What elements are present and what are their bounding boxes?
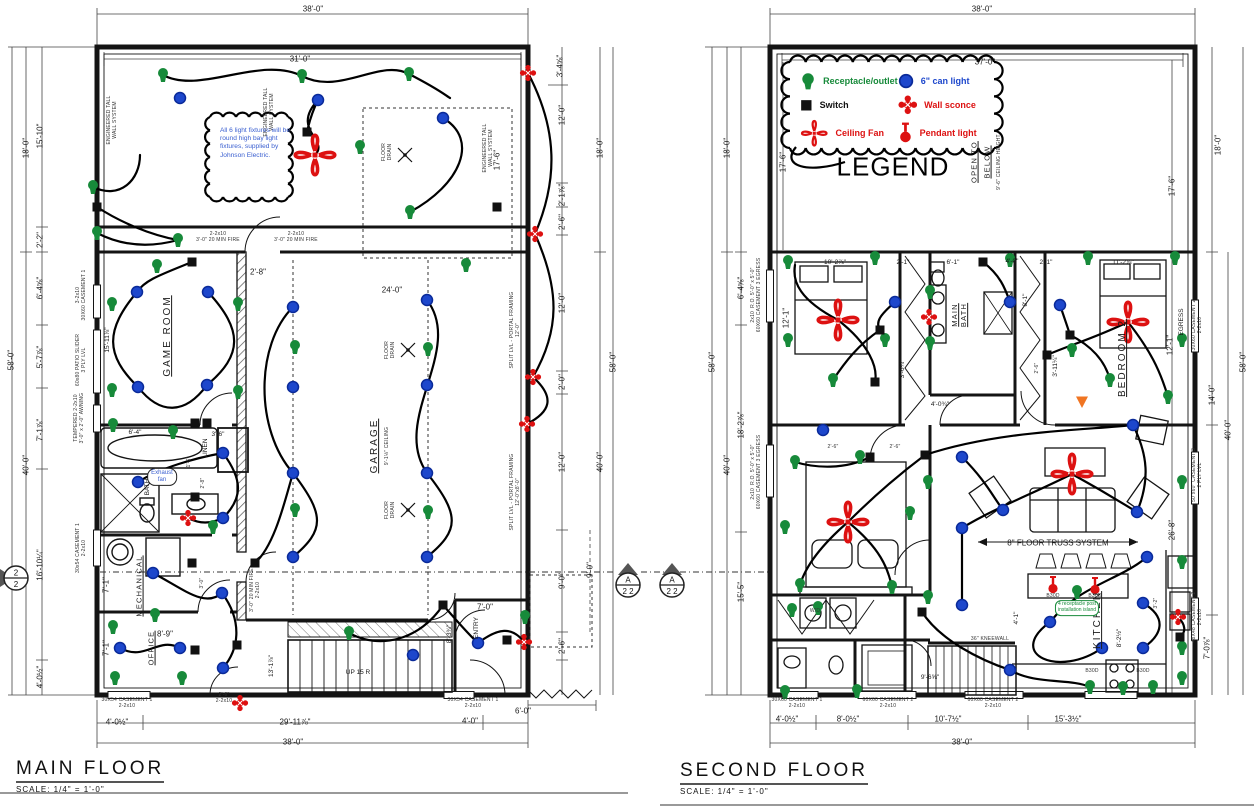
dim-label: 3'-11¼" (1052, 355, 1060, 377)
can-light-icon (286, 550, 300, 564)
wall-sconce-icon (1170, 609, 1187, 626)
dim-label: 40'-0" (1223, 420, 1232, 440)
dimension-rails (8, 8, 1243, 748)
receptacle-icon (1168, 249, 1182, 267)
dim-label: 15'-5" (736, 582, 745, 602)
dim-label: 38'-0" (303, 4, 323, 13)
wall-sconce-icon (525, 369, 542, 386)
dim-label: 7'-1" (101, 577, 110, 593)
dim-label: 50"x60" CASEMENT 3 2 PLY LVL (1192, 448, 1204, 502)
receptacle-icon (288, 338, 302, 356)
can-light-icon (216, 511, 230, 525)
dim-label: 60X60 CASEMENT 2 2-2x10 (863, 698, 914, 710)
ceiling-fan-icon (1049, 451, 1095, 497)
dim-label: 6'-0" (515, 706, 531, 715)
dim-label: 15'-3½" (1054, 714, 1081, 723)
receptacle-icon (1175, 473, 1189, 491)
wall-sconce-icon (921, 309, 938, 326)
receptacle-icon (781, 253, 795, 271)
second-floor-title-block: SECOND FLOOR SCALE: 1/4" = 1'-0" (680, 760, 868, 796)
legend-item-label: 6" can light (921, 76, 970, 86)
switch-icon (875, 325, 886, 336)
can-light-icon (131, 475, 145, 489)
dim-label: 10'-2⅞" (824, 259, 846, 267)
can-light-icon (201, 285, 215, 299)
floor-drain-icon (399, 341, 417, 359)
dim-label: 58'-0" (1238, 352, 1247, 372)
can-light-icon (113, 641, 127, 655)
can-light-icon (1136, 596, 1150, 610)
receptacle-icon (86, 178, 100, 196)
dim-label: 12'-1" (1165, 335, 1174, 355)
can-light-icon (1003, 295, 1017, 309)
dim-label: SPLIT LVL - PORTAL FRAMING 12'-0"x8'-0" (510, 454, 522, 531)
switch-icon (1065, 330, 1076, 341)
can-light-icon (286, 380, 300, 394)
switch-icon (1042, 350, 1053, 361)
svg-text:A: A (669, 576, 675, 585)
dim-label: 6'-1" (947, 259, 960, 267)
receptacle-icon (1175, 553, 1189, 571)
dim-label: 26'-8" (1167, 520, 1176, 540)
dim-label: 10'-7½" (934, 714, 961, 723)
can-light-icon (216, 446, 230, 460)
receptacle-icon (1070, 583, 1084, 601)
dim-label: 40'-0" (21, 455, 30, 475)
switch-icon (92, 202, 103, 213)
dim-label: 2'-8" (250, 267, 266, 276)
receptacle-icon (800, 71, 816, 92)
receptacle-icon (518, 608, 532, 626)
dim-label: 48X48 CASEMENT 2 2-2x10 (1192, 592, 1204, 643)
can-light-icon (888, 295, 902, 309)
dim-label: 3'-4⅝" (555, 55, 564, 78)
dim-label: FLOOR DRAIN (385, 341, 397, 359)
dim-label: 2'-1" (1040, 259, 1053, 267)
legend-item: Receptacle/outlet (800, 71, 898, 92)
receptacle-icon (788, 453, 802, 471)
dim-label: 9'-0" (557, 573, 566, 589)
dim-label: 5'-7⅞" (35, 346, 44, 369)
dim-label: 2'-6" (828, 445, 839, 451)
can-light-icon (173, 91, 187, 105)
wall-sconce-icon (180, 510, 197, 527)
svg-text:2: 2 (14, 569, 19, 578)
dim-label: 17'-6" (1167, 176, 1176, 196)
receptacle-icon (288, 501, 302, 519)
floorplan-drawing: 22A2 2A2 2 (0, 0, 1254, 811)
switch-icon (865, 452, 876, 463)
dim-label: 2'-1" (897, 259, 910, 267)
receptacle-icon (826, 371, 840, 389)
dim-label: 38'-0" (972, 4, 992, 13)
dim-label: 60x80 PATIO SLIDER 3 PLY LVL (76, 334, 88, 386)
receptacle-icon (402, 65, 416, 83)
receptacle-icon (175, 669, 189, 687)
can-light-icon (1130, 505, 1144, 519)
dim-label: 16'-10¼" (35, 549, 44, 581)
can-light-icon (216, 661, 230, 675)
receptacle-icon (885, 578, 899, 596)
svg-text:2: 2 (14, 580, 19, 589)
dim-label: W/D (810, 609, 820, 615)
can-light-icon (200, 378, 214, 392)
room-label: MECHANICAL (136, 555, 145, 616)
can-light-icon (955, 521, 969, 535)
switch-icon (187, 257, 198, 268)
dim-label: 8'-2½" (1116, 629, 1124, 647)
receptacle-icon (403, 203, 417, 221)
can-light-icon (146, 566, 160, 580)
can-light-icon (816, 423, 830, 437)
dim-label: 30x54 CASEMENT 1 2-2x10 (76, 523, 88, 573)
can-light-icon (996, 503, 1010, 517)
receptacle-icon (421, 503, 435, 521)
dim-label: 36" KNEEWALL (971, 637, 1009, 643)
main-floor-title: MAIN FLOOR (16, 758, 164, 783)
receptacle-icon (1081, 249, 1095, 267)
dim-label: 2-2x10 3'-0" 20 MIN FIRE (274, 232, 318, 244)
can-light-icon (420, 550, 434, 564)
switch-icon (978, 257, 989, 268)
dim-label: 18'-0" (595, 138, 604, 158)
note-label: Exhaust fan (147, 468, 177, 486)
dim-label: 12'-1" (781, 308, 790, 328)
dim-label: 2'-6" 2-2x10 (216, 693, 233, 705)
dim-label: 2-2x10 3'-0" 20 MIN FIRE (196, 232, 240, 244)
can-light-icon (215, 586, 229, 600)
switch-icon (232, 640, 243, 651)
section-marker: A2 2 (616, 563, 640, 597)
dim-label: 18'-2⅞" (736, 411, 745, 438)
dim-label: 4'-0¾" (931, 401, 949, 409)
wall-sconce-icon (527, 226, 544, 243)
svg-text:2 2: 2 2 (666, 587, 678, 596)
can-light-icon (898, 73, 914, 89)
receptacle-icon (166, 423, 180, 441)
receptacle-icon (923, 283, 937, 301)
dim-label: 30X54 CASEMENT 1 2-2x10 (102, 698, 153, 710)
can-light-icon (286, 466, 300, 480)
legend-item-label: Receptacle/outlet (823, 76, 898, 86)
dim-label: B30D (1085, 669, 1098, 675)
receptacle-icon (923, 334, 937, 352)
floorplan-sheet: 22A2 2A2 2 38'-0"31'-0"3'-4⅝"17'-6"18'-0… (0, 0, 1254, 811)
dim-label: UP 15 R (346, 669, 370, 677)
legend-item-label: Pendant light (920, 128, 977, 138)
can-light-icon (131, 380, 145, 394)
dim-label: 3'-0" (200, 578, 206, 589)
room-label: OFFICE (148, 631, 157, 666)
svg-text:A: A (625, 576, 631, 585)
dim-label: 6'-4⅝" (35, 277, 44, 300)
dim-label: B30D (1088, 594, 1101, 600)
dim-label: 4'-0½" (776, 714, 799, 723)
dim-label: 60X60 CASEMENT 2 2-2x10 (968, 698, 1019, 710)
dim-label: 7'-1" (101, 640, 110, 656)
receptacle-icon (1065, 341, 1079, 359)
dim-label: 8'-0½" (837, 714, 860, 723)
legend-item: 6" can light (898, 71, 998, 92)
dim-label: 9'-0" (585, 562, 594, 578)
legend-item-label: Wall sconce (924, 100, 976, 110)
switch-icon (917, 607, 928, 618)
dim-label: 2x10 R.O. 5'-0" x 5'-0" 60X60 CASEMENT 3… (751, 258, 763, 333)
dim-label: 8'-3¾" (446, 625, 454, 643)
receptacle-icon (106, 416, 120, 434)
receptacle-icon (353, 138, 367, 156)
dim-label: ENGINEERED TALL WALL SYSTEM (107, 96, 119, 145)
receptacle-icon (231, 295, 245, 313)
receptacle-icon (1146, 678, 1160, 696)
dim-label: 17'-6" (778, 152, 787, 172)
dim-label: 8" FLOOR TRUSS SYSTEM (1007, 538, 1108, 547)
floor-drain-icon (396, 146, 414, 164)
dim-label: 6'-4⅝" (736, 277, 745, 300)
wall-sconce-icon (232, 695, 249, 712)
dim-label: 58'-0" (6, 350, 15, 370)
pendant-light-icon (1047, 576, 1060, 595)
dim-label: 4'-0½" (106, 717, 129, 726)
dim-label: 6'-4" (129, 429, 142, 437)
room-label: GAME ROOM (162, 295, 174, 376)
dim-label: 12'-0" (557, 293, 566, 313)
receptacle-icon (295, 67, 309, 85)
legend-item-label: Ceiling Fan (836, 128, 885, 138)
dim-label: B30D (1046, 594, 1059, 600)
can-light-icon (311, 93, 325, 107)
legend-item: Switch (800, 95, 898, 115)
can-light-icon (1003, 663, 1017, 677)
receptacle-icon (793, 576, 807, 594)
receptacle-icon (105, 295, 119, 313)
can-light-icon (1140, 550, 1154, 564)
receptacle-icon (108, 669, 122, 687)
receptacle-icon (90, 224, 104, 242)
dim-label: 11'-2⅞" (1112, 259, 1134, 267)
dim-label: 2'-0" (557, 374, 566, 390)
dim-label: SPLIT LVL - PORTAL FRAMING 12'-0" (510, 292, 522, 369)
dim-label: 29'-11⅞" (280, 717, 311, 726)
receptacle-icon (150, 257, 164, 275)
dim-label: 12'-0" (557, 452, 566, 472)
dim-label: 2'-6" (557, 638, 566, 654)
dim-label: 12'-0" (557, 105, 566, 125)
receptacle-icon (421, 340, 435, 358)
switch-icon (800, 99, 813, 112)
can-light-icon (420, 293, 434, 307)
second-floor-scale: SCALE: 1/4" = 1'-0" (680, 787, 868, 796)
dim-label: 2'-1⅞" (557, 184, 566, 207)
dim-label: TEMPERED 2-2x10 3'-0" x 2'-0" AWNING (74, 393, 86, 444)
can-light-icon (130, 285, 144, 299)
can-light-icon (406, 648, 420, 662)
switch-icon (202, 418, 213, 429)
legend-item: Ceiling Fan (800, 119, 898, 148)
dim-label: 18'-0" (1213, 135, 1222, 155)
marker-triangle-icon (1075, 396, 1089, 409)
dim-label: 3'-2" (1154, 598, 1160, 609)
section-marker: 22 (0, 566, 28, 590)
dim-label: ENTRY (473, 617, 481, 639)
receptacle-icon (105, 381, 119, 399)
dim-label: 58'-0" (608, 352, 617, 372)
fixture-note: All 6 light fixtures will be round high … (211, 119, 300, 209)
receptacle-icon (342, 624, 356, 642)
room-label: MAIN BATH (951, 303, 969, 327)
switch-icon (502, 635, 513, 646)
legend-item: Wall sconce (898, 95, 998, 115)
receptacle-icon (778, 518, 792, 536)
dim-label: 2'-8" (201, 478, 207, 489)
receptacle-icon (231, 383, 245, 401)
switch-icon (190, 492, 201, 503)
dim-label: 38'-0" (283, 737, 303, 746)
legend-title: LEGEND (837, 152, 950, 183)
dim-label: FLOOR DRAIN (385, 501, 397, 519)
dim-label: 9'-6⅝" (921, 674, 939, 682)
dim-label: 31'-0" (290, 54, 310, 63)
receptacle-icon (868, 249, 882, 267)
receptacle-icon (106, 618, 120, 636)
dim-label: 3'-0" 20 MIN FIRE 2-2x10 (250, 568, 262, 612)
dim-label: 15'-10" (35, 124, 44, 149)
can-light-icon (1136, 641, 1150, 655)
svg-text:2 2: 2 2 (622, 587, 634, 596)
dim-label: 30X60 CASEMENT 1 2-2x10 (772, 698, 823, 710)
receptacle-icon (1161, 388, 1175, 406)
dim-label: EGRESS (1178, 308, 1186, 335)
dim-label: 1'-6" (187, 457, 193, 468)
switch-icon (492, 202, 503, 213)
dim-label: 8'-9" (157, 629, 173, 638)
wall-sconce-icon (898, 95, 918, 115)
ceiling-fan-icon (800, 119, 829, 148)
second-floor-title: SECOND FLOOR (680, 760, 868, 785)
dim-label: 40'-0" (595, 452, 604, 472)
receptacle-icon (148, 606, 162, 624)
receptacle-icon (921, 588, 935, 606)
room-label: BEDROOM 2 (1117, 319, 1129, 397)
receptacle-icon (903, 504, 917, 522)
dim-label: 4'-0½" (35, 666, 44, 689)
dim-label: ENGINEERED TALL WALL SYSTEM (483, 124, 495, 173)
receptacle-icon (459, 256, 473, 274)
dim-label: 9'-1⅛" CEILING (385, 427, 391, 465)
receptacle-icon (1116, 679, 1130, 697)
dim-label: 30X54 CASEMENT 1 2-2x10 (448, 698, 499, 710)
switch-icon (190, 418, 201, 429)
dim-label: 18'-0" (722, 138, 731, 158)
dim-label: 4'-0" (1006, 258, 1019, 266)
dim-label: B30D (1136, 669, 1149, 675)
section-marker: A2 2 (660, 563, 684, 597)
receptacle-icon (1103, 371, 1117, 389)
dim-label: 2'-6" (1035, 363, 1041, 374)
switch-icon (438, 600, 449, 611)
wall-sconce-icon (516, 634, 533, 651)
can-light-icon (955, 450, 969, 464)
sheet-divider-left (0, 792, 628, 794)
room-label: GARAGE (369, 419, 381, 474)
pendant-light-icon (898, 122, 913, 144)
dim-label: 7'-1⅞" (35, 419, 44, 442)
can-light-icon (173, 641, 187, 655)
can-light-icon (286, 300, 300, 314)
dim-label: 13'-1⅞" (268, 655, 276, 677)
dim-label: 38'-0" (952, 737, 972, 746)
dim-label: 4'-1" (1013, 612, 1021, 625)
receptacle-icon (781, 331, 795, 349)
legend-item: Pendant light (898, 119, 998, 148)
ceiling-fan-icon (825, 499, 871, 545)
receptacle-icon (785, 601, 799, 619)
switch-icon (920, 450, 931, 461)
switch-icon (1175, 632, 1186, 643)
dim-label: 3'-6" (212, 431, 225, 439)
receptacle-icon (1083, 678, 1097, 696)
can-light-icon (436, 111, 450, 125)
dim-label: 14'-0" (1207, 385, 1216, 405)
legend-item-label: Switch (820, 100, 849, 110)
dim-label: 3'-6¼" (899, 360, 907, 378)
dim-label: FLOOR DRAIN (382, 143, 394, 161)
receptacle-icon (156, 66, 170, 84)
floor-drain-icon (399, 501, 417, 519)
receptacle-icon (171, 231, 185, 249)
dim-label: 8'-1" (1022, 294, 1030, 307)
dim-label: 2'-6" (557, 214, 566, 230)
can-light-icon (1126, 418, 1140, 432)
receptacle-icon (921, 473, 935, 491)
can-light-icon (1043, 615, 1057, 629)
dim-label: 2'-2" (35, 232, 44, 248)
can-light-icon (420, 378, 434, 392)
can-light-icon (955, 598, 969, 612)
dim-label: 3-2x10 30X60 CASEMENT 1 (76, 270, 88, 321)
dim-label: 30X60 CASEMENT 2 2-2x10 (1192, 300, 1204, 351)
dim-label: 15'-11⅞" (104, 327, 112, 352)
sheet-divider-right (660, 804, 1254, 806)
dim-label: 2x10 R.O. 5'-0" x 5'-0" 60X60 CASEMENT 3… (751, 435, 763, 510)
switch-icon (190, 645, 201, 656)
dim-label: 4'-0" (462, 716, 478, 725)
dim-label: 18'-0" (21, 138, 30, 158)
can-light-icon (420, 466, 434, 480)
dim-label: 7'-0⅞" (1202, 637, 1211, 660)
receptacle-icon (1175, 669, 1189, 687)
ceiling-fan-icon (815, 297, 861, 343)
switch-icon (870, 377, 881, 388)
main-floor-title-block: MAIN FLOOR SCALE: 1/4" = 1'-0" (16, 758, 164, 794)
dim-label: 58'-0" (707, 352, 716, 372)
wall-sconce-icon (520, 65, 537, 82)
wall-sconce-icon (519, 416, 536, 433)
dim-label: 2'-6" (890, 445, 901, 451)
dim-label: LINEN (202, 438, 210, 457)
switch-icon (187, 558, 198, 569)
note-label: 4 receptacle post installation island (1055, 600, 1099, 616)
dim-label: 24'-0" (382, 285, 402, 294)
can-light-icon (1053, 298, 1067, 312)
dim-label: 40'-0" (722, 455, 731, 475)
dim-label: 7'-0" (477, 602, 493, 611)
legend-box: Receptacle/outlet6" can lightSwitchWall … (792, 64, 1006, 154)
